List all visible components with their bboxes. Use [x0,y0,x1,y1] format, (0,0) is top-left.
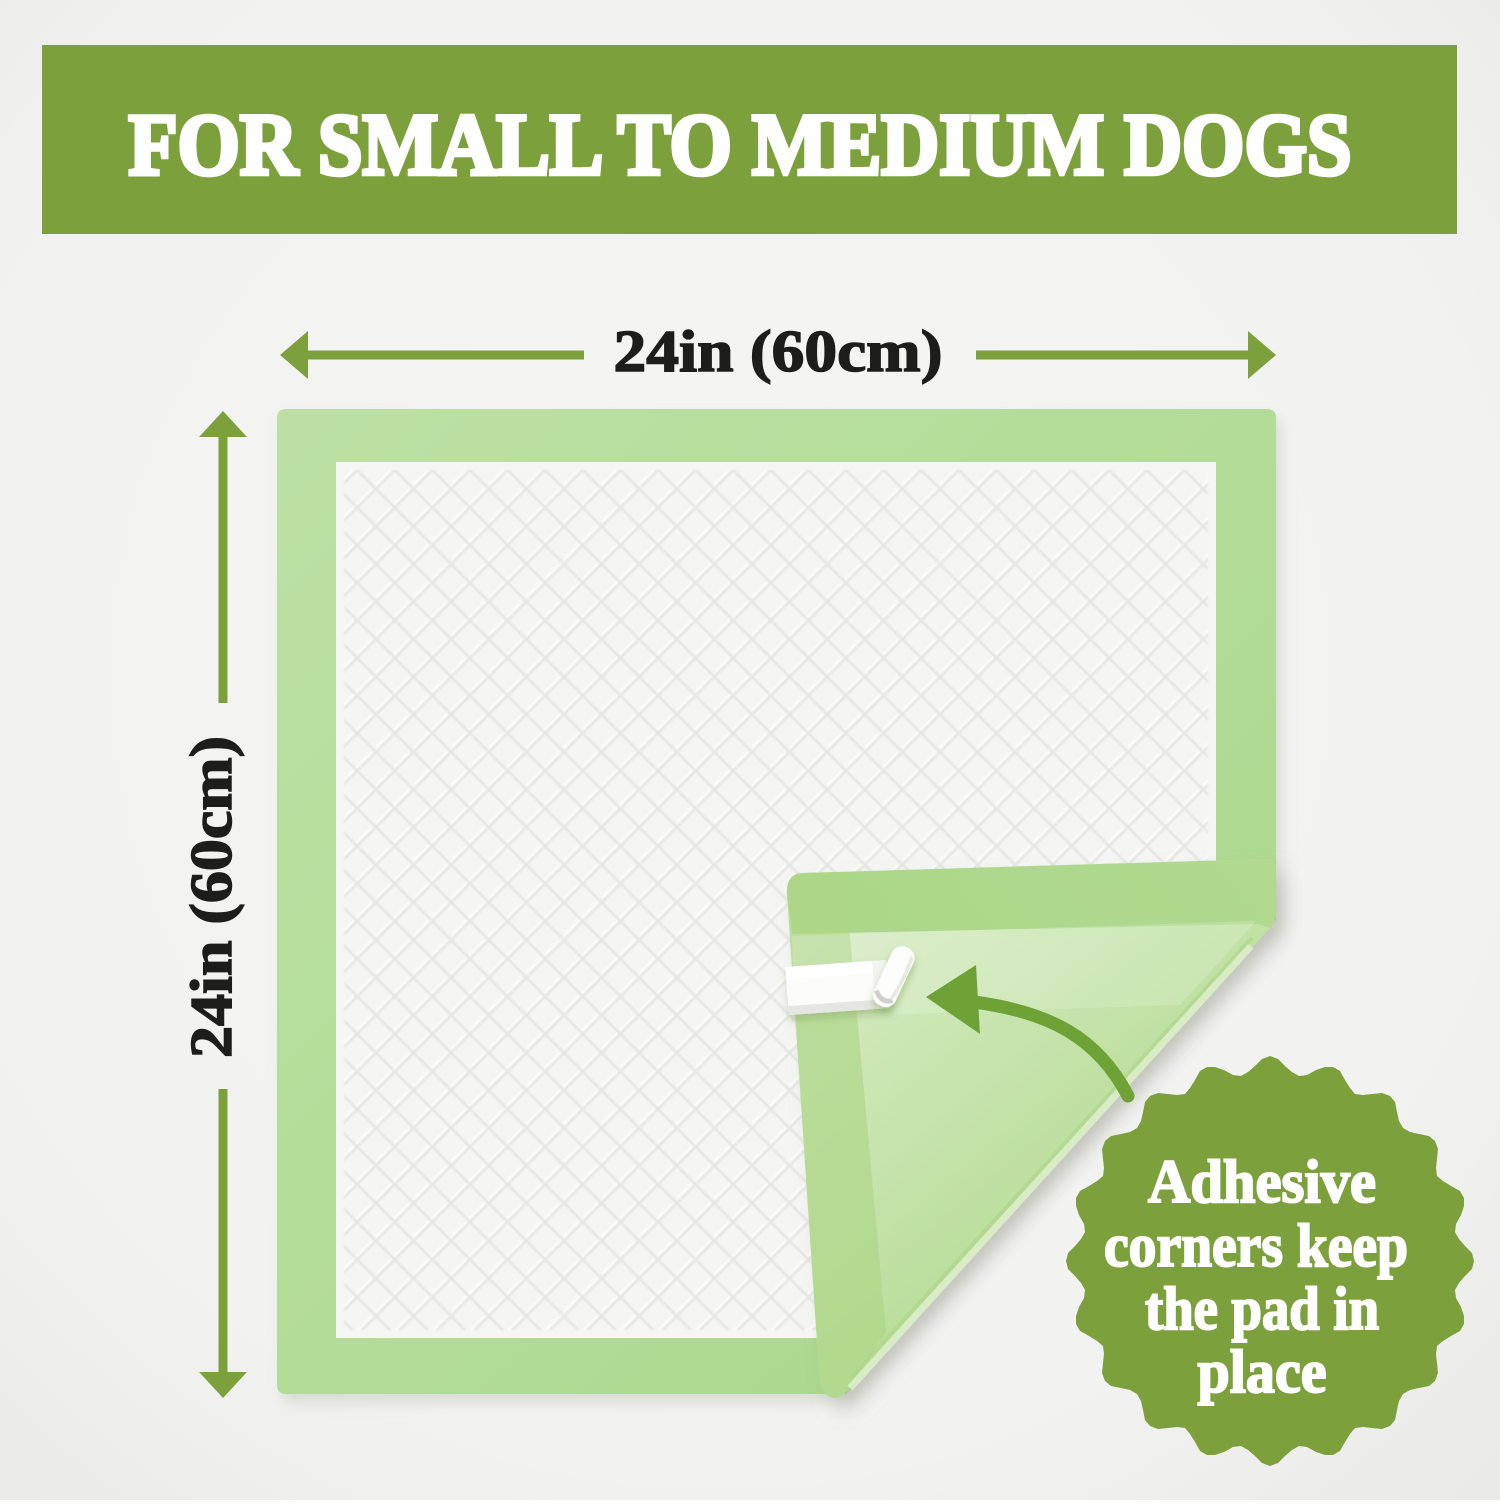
svg-text:24in (60cm): 24in (60cm) [178,736,244,1058]
svg-text:Adhesive: Adhesive [1148,1149,1376,1216]
svg-text:FOR SMALL TO MEDIUM DOGS: FOR SMALL TO MEDIUM DOGS [129,97,1352,194]
svg-text:the pad in: the pad in [1145,1276,1379,1343]
svg-text:corners keep: corners keep [1104,1213,1408,1280]
svg-text:24in (60cm): 24in (60cm) [614,318,943,384]
svg-text:place: place [1198,1339,1327,1406]
